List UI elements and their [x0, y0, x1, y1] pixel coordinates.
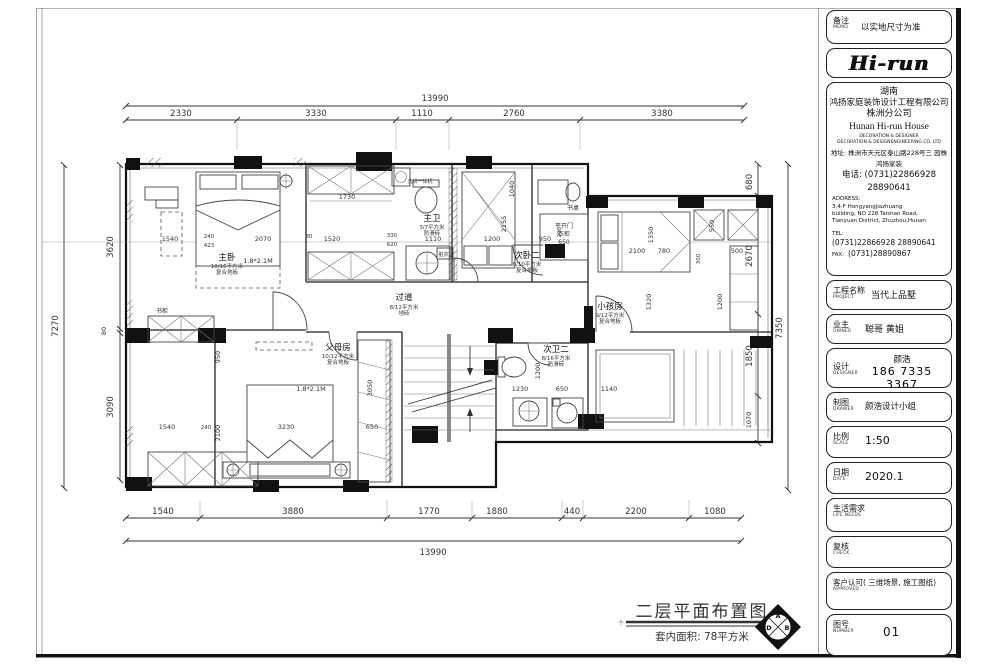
svg-text:3090: 3090 [106, 396, 116, 418]
dim-left-overall: 7270 [51, 315, 61, 337]
project-value: 当代上品墅 [871, 288, 916, 301]
svg-text:3/7平方米: 3/7平方米 [419, 223, 445, 231]
svg-text:620: 620 [387, 242, 398, 248]
svg-text:地砖: 地砖 [398, 309, 410, 317]
label-desk: 书桌 [567, 204, 579, 212]
svg-text:A: A [775, 612, 780, 620]
svg-text:1200: 1200 [484, 235, 501, 243]
svg-text:1.8*2.1M: 1.8*2.1M [296, 385, 326, 393]
approved-box: 客户认可( 三维场景, 施工图纸)APPROVED [826, 572, 952, 610]
svg-text:650: 650 [556, 385, 568, 393]
svg-text:1200: 1200 [534, 363, 542, 380]
svg-text:复合地板: 复合地板 [599, 317, 622, 325]
designer-name: 颜浩 [857, 353, 947, 365]
check-box: 复核CHECK [826, 536, 952, 568]
svg-text:1140: 1140 [601, 385, 618, 393]
svg-text:复合地板: 复合地板 [516, 266, 539, 274]
svg-text:防滑砖: 防滑砖 [548, 360, 565, 368]
svg-text:550: 550 [708, 220, 716, 232]
walls [42, 152, 772, 492]
drawing-title: 二层平面布置图 套内面积: 78平方米 A B C D [618, 602, 801, 650]
balcony [596, 350, 768, 426]
svg-text:1070: 1070 [745, 412, 753, 429]
svg-text:1350: 1350 [647, 227, 655, 244]
company-box: 湖南 鸿扬家庭装饰设计工程有限公司 株洲分公司 Hunan Hi-run Hou… [826, 82, 952, 276]
kids-bed [598, 212, 690, 272]
svg-text:1520: 1520 [324, 235, 341, 243]
drawer-value: 颜浩设计小组 [865, 400, 916, 412]
svg-text:D: D [766, 624, 772, 632]
svg-text:1540: 1540 [162, 235, 179, 243]
stairs [404, 334, 496, 442]
svg-text:3380: 3380 [651, 109, 673, 119]
svg-text:650: 650 [558, 239, 570, 246]
date-box: 日期DATE 2020.1 [826, 462, 952, 494]
svg-text:240: 240 [201, 425, 212, 431]
memo-label: 备注 [833, 17, 849, 25]
svg-text:80: 80 [100, 327, 108, 335]
svg-text:2155: 2155 [500, 216, 508, 233]
svg-text:2070: 2070 [255, 235, 272, 243]
svg-text:300: 300 [696, 253, 702, 264]
svg-text:240: 240 [204, 234, 215, 240]
master-toilet [415, 187, 437, 213]
svg-text:复合地板: 复合地板 [216, 268, 239, 276]
number-box: 图号NUMBER 01 [826, 614, 952, 656]
label-parents-room: 父母房 [325, 342, 351, 353]
svg-text:80: 80 [306, 234, 313, 240]
svg-text:1850: 1850 [745, 345, 755, 367]
svg-text:1880: 1880 [486, 507, 508, 517]
logo-box: Hi-run [826, 48, 952, 78]
label-bookcase: 书柜 [156, 307, 168, 315]
svg-text:8/12平方米: 8/12平方米 [390, 303, 419, 311]
svg-text:2200: 2200 [625, 507, 647, 517]
svg-text:1320: 1320 [645, 294, 653, 311]
svg-text:1230: 1230 [512, 385, 529, 393]
svg-text:1200: 1200 [716, 294, 724, 311]
designer-phone: 186 7335 3367 [857, 365, 947, 388]
svg-text:3050: 3050 [366, 380, 374, 397]
sheet-right-border [956, 8, 961, 658]
svg-text:10/12平方米: 10/12平方米 [322, 352, 355, 360]
designer-box: 设计DESIGNER 颜浩 186 7335 3367 [826, 348, 952, 388]
svg-text:1080: 1080 [704, 507, 726, 517]
svg-text:680: 680 [745, 174, 755, 190]
svg-text:1540: 1540 [152, 507, 174, 517]
label-second-bath: 次卫二 [543, 344, 569, 355]
company-logo: Hi-run [849, 51, 929, 75]
life-needs-box: 生活需求LIFE NEEDS [826, 498, 952, 532]
label-kids-room: 小孩房 [597, 301, 623, 312]
title-block: 备注MEMO 以实地尺寸为准 Hi-run 湖南 鸿扬家庭装饰设计工程有限公司 … [826, 0, 954, 666]
svg-text:3880: 3880 [282, 507, 304, 517]
memo-box: 备注MEMO 以实地尺寸为准 [826, 10, 952, 44]
svg-text:950: 950 [214, 351, 222, 363]
project-box: 工程名称PROJECT 当代上品墅 [826, 280, 952, 310]
dim-bottom-overall: 13990 [419, 548, 446, 558]
svg-text:复合地板: 复合地板 [327, 358, 350, 366]
number-value: 01 [883, 625, 900, 639]
label-master: 主卧 [218, 252, 236, 263]
date-value: 2020.1 [865, 470, 904, 483]
svg-text:290: 290 [557, 226, 563, 237]
svg-text:1540: 1540 [159, 423, 176, 431]
sheet-bottom-border [36, 654, 961, 658]
scale-box: 比例SCALE 1:50 [826, 426, 952, 458]
drawing-area-text: 套内面积: 78平方米 [655, 630, 749, 643]
svg-text:650: 650 [366, 423, 378, 431]
svg-text:950: 950 [539, 235, 551, 243]
desk [538, 180, 568, 204]
svg-text:440: 440 [564, 507, 580, 517]
svg-text:2100: 2100 [214, 425, 222, 442]
svg-text:1730: 1730 [339, 193, 356, 201]
label-second-bedroom: 次卧二 [514, 250, 540, 261]
top-dimension-chain: 13990 2330 3330 1110 2760 3380 [123, 94, 747, 150]
svg-text:1040: 1040 [508, 181, 516, 198]
svg-text:330: 330 [387, 233, 398, 239]
label-washer-dryer: 洗烘一体机 [407, 178, 432, 185]
svg-text:8/16平方米: 8/16平方米 [542, 354, 571, 362]
memo-value: 以实地尺寸为准 [861, 21, 921, 33]
svg-text:3230: 3230 [278, 423, 295, 431]
svg-text:1.8*2.1M: 1.8*2.1M [243, 257, 273, 265]
svg-text:9/12平方米: 9/12平方米 [596, 311, 625, 319]
parents-wardrobe [358, 340, 390, 482]
owner-box: 业主OWNER 聪哥 黄姐 [826, 314, 952, 344]
svg-text:10/16平方米: 10/16平方米 [211, 262, 244, 270]
svg-text:1110: 1110 [425, 235, 442, 243]
second-toilet [502, 357, 526, 377]
tv-cabinet [256, 342, 312, 350]
svg-text:2670: 2670 [745, 245, 755, 267]
left-dimension-chain: 7270 3620 80 3090 [51, 162, 123, 491]
svg-text:1110: 1110 [411, 109, 433, 119]
svg-text:780: 780 [658, 247, 670, 255]
svg-text:3620: 3620 [106, 236, 116, 258]
bottom-dimension-chain: 1540 3880 1770 1880 440 2200 1080 13990 [123, 500, 744, 558]
svg-text:500: 500 [731, 247, 743, 255]
drawer-box: 制图DRAWER 颜浩设计小组 [826, 392, 952, 422]
master-bed [196, 172, 280, 266]
dim-top-overall: 13990 [421, 94, 448, 104]
svg-text:B: B [785, 624, 790, 632]
svg-text:3330: 3330 [305, 109, 327, 119]
svg-text:8/10平方米: 8/10平方米 [513, 260, 542, 268]
label-hallway: 过道 [395, 292, 413, 303]
drawing-title-text: 二层平面布置图 [636, 602, 769, 622]
label-master-bath: 主卫 [423, 213, 441, 224]
svg-text:2100: 2100 [629, 247, 646, 255]
label-laundry-basket: 脏衣篮 [438, 251, 453, 258]
svg-text:423: 423 [204, 243, 215, 249]
master-door [273, 292, 307, 330]
scale-value: 1:50 [865, 434, 890, 447]
owner-value: 聪哥 黄姐 [865, 322, 904, 335]
svg-text:1770: 1770 [418, 507, 440, 517]
svg-text:C: C [776, 638, 781, 646]
svg-text:2330: 2330 [170, 109, 192, 119]
dim-right-overall: 7350 [775, 317, 785, 339]
svg-text:2760: 2760 [503, 109, 525, 119]
